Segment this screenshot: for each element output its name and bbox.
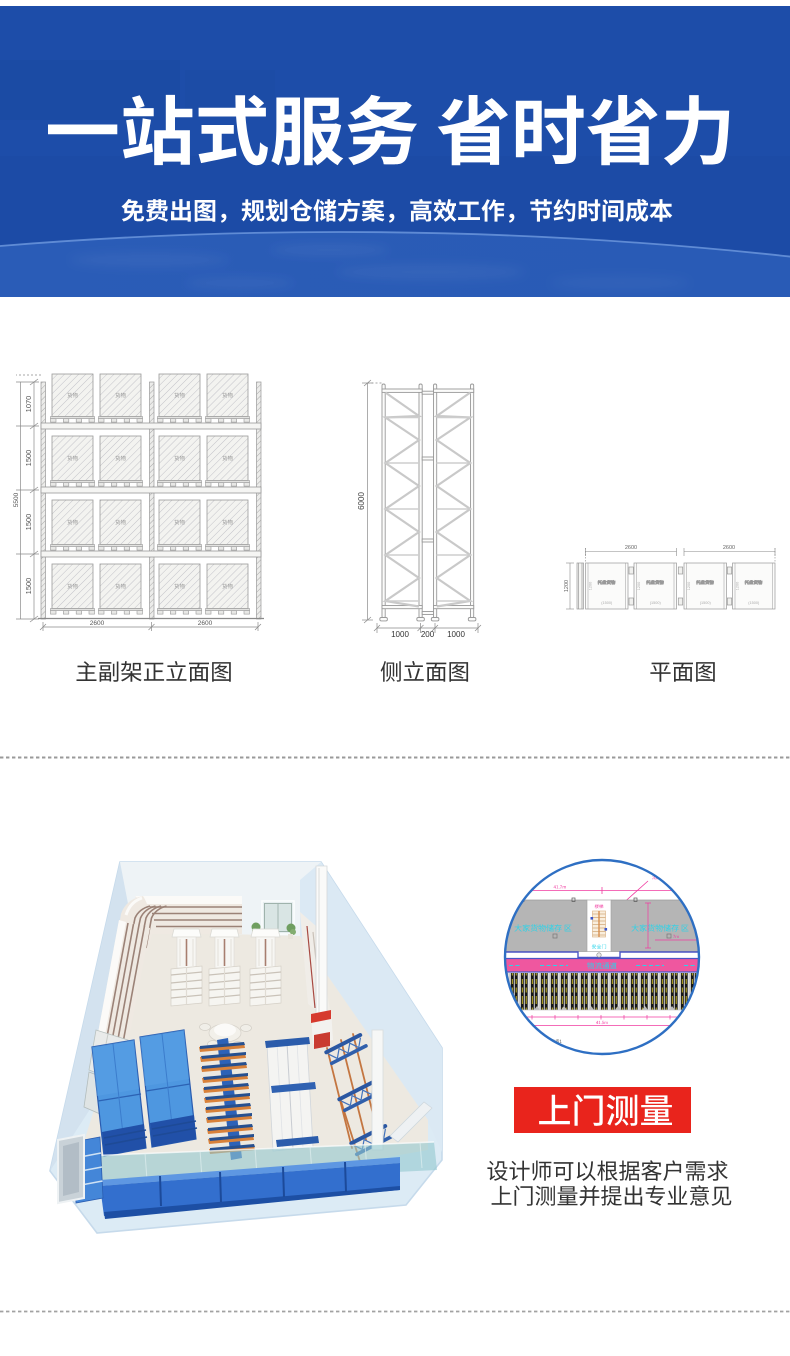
svg-text:1200: 1200: [637, 582, 641, 590]
svg-text:1500: 1500: [24, 578, 33, 595]
svg-text:(1500): (1500): [748, 601, 760, 605]
svg-text:5500: 5500: [13, 492, 20, 507]
svg-text:1500: 1500: [24, 450, 33, 467]
svg-text:1070: 1070: [24, 396, 33, 413]
svg-text:2600: 2600: [625, 545, 637, 551]
svg-text:1000: 1000: [391, 630, 409, 639]
svg-text:1500: 1500: [24, 514, 33, 531]
svg-text:1000: 1000: [447, 630, 465, 639]
svg-text:(1500): (1500): [700, 601, 712, 605]
svg-text:1200: 1200: [736, 582, 740, 590]
svg-text:1200: 1200: [687, 582, 691, 590]
svg-text:2600: 2600: [90, 620, 105, 627]
svg-text:1200: 1200: [589, 582, 593, 590]
svg-text:2600: 2600: [723, 545, 735, 551]
svg-text:(1500): (1500): [601, 601, 613, 605]
svg-text:200: 200: [421, 630, 435, 639]
svg-text:(1500): (1500): [650, 601, 662, 605]
svg-text:1200: 1200: [564, 580, 570, 592]
svg-text:2600: 2600: [198, 620, 213, 627]
svg-text:6000: 6000: [357, 492, 366, 510]
